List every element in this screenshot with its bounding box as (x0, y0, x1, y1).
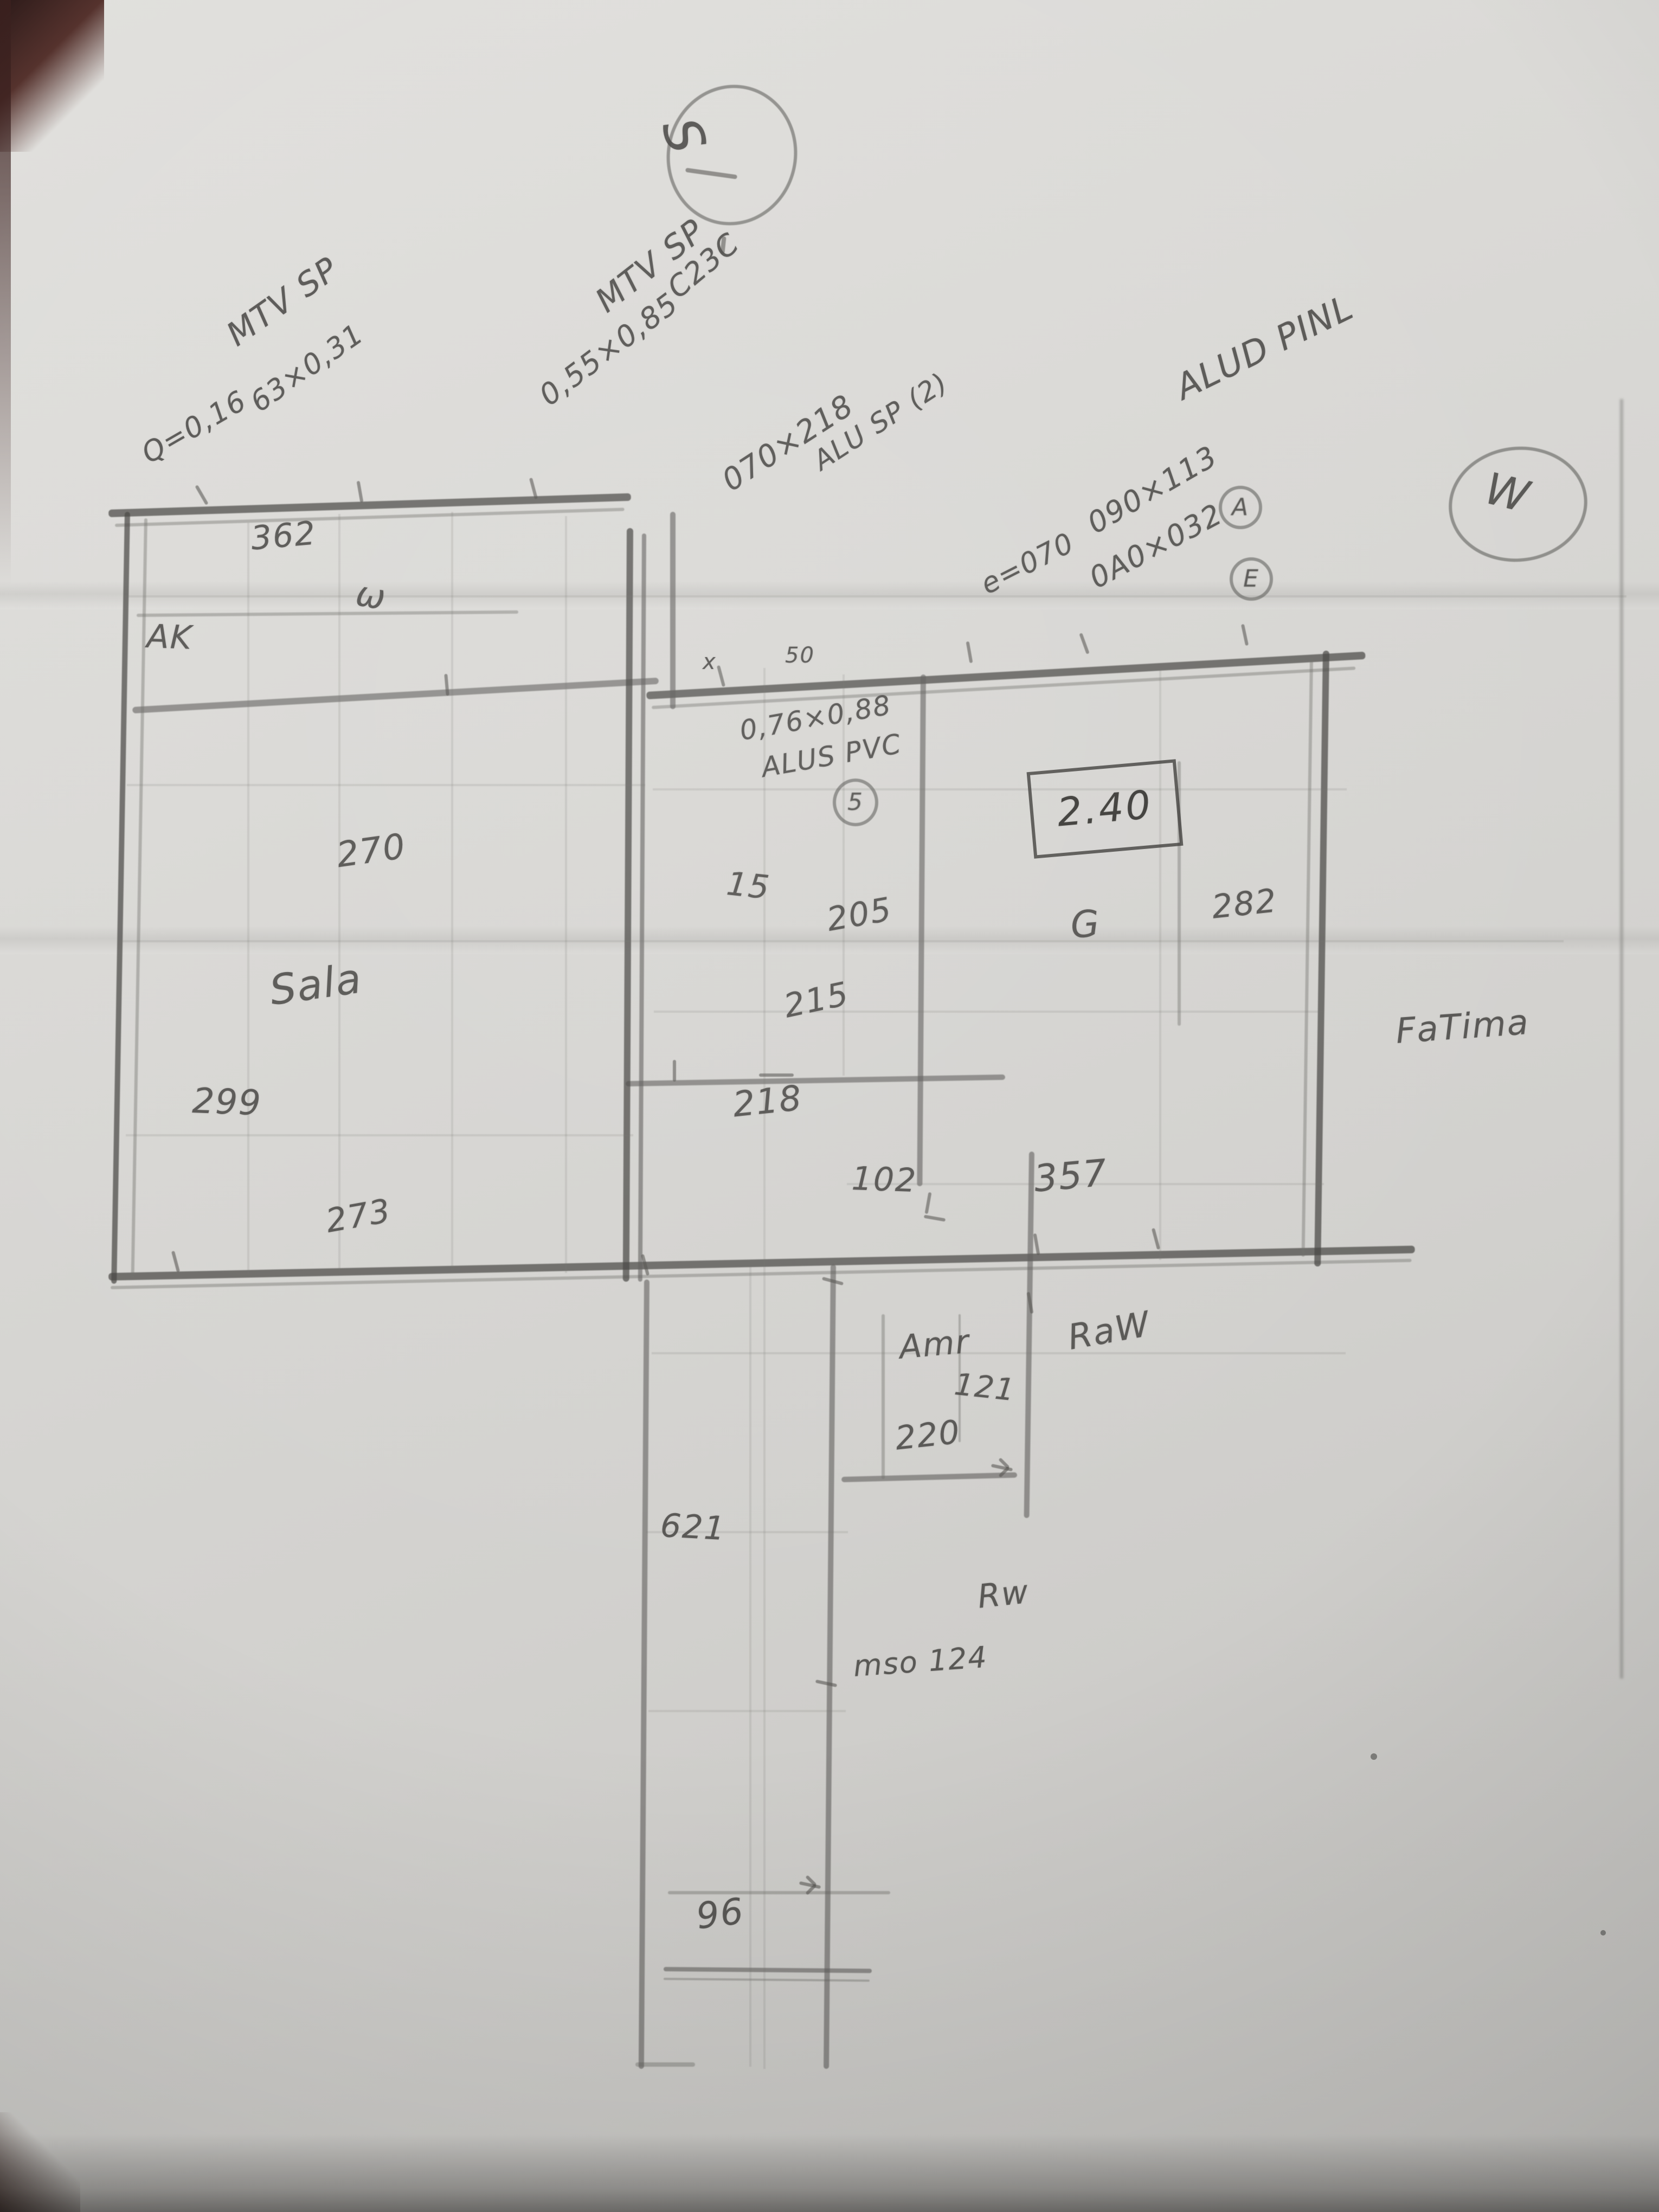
dim-270: 270 (334, 825, 408, 876)
wall-center-double (638, 533, 646, 1282)
dim-tick (925, 1192, 932, 1214)
mso124-note: mso 124 (852, 1641, 989, 1684)
wall-center (623, 528, 633, 1282)
dim-tick (171, 1251, 180, 1272)
grid-line (451, 512, 453, 1271)
pvc-spec-circle: 5 (833, 779, 878, 826)
photo-edge-shadow (0, 2134, 1659, 2212)
wall-mid-right-partition (917, 674, 926, 1186)
dim-tick (1241, 624, 1249, 646)
wall-top-left-room-top (108, 493, 631, 517)
grid-line (127, 784, 645, 786)
dim-arrow (991, 1464, 1013, 1471)
wall-left-outer (111, 512, 130, 1284)
grid-line (648, 1710, 846, 1712)
window-spec4-circle: E (1230, 557, 1273, 601)
pencil-dot (1600, 1930, 1606, 1935)
floor-plan-sketch-photo: S W (0, 0, 1659, 2212)
window-spec1-q: Q=0,16 (137, 385, 253, 471)
grid-line (749, 1266, 751, 2067)
tick-label-x: x (703, 648, 717, 674)
dim-357: 357 (1032, 1152, 1109, 1201)
wall-corridor-left (639, 1279, 650, 2069)
height-value-box: 2.40 (1027, 759, 1184, 858)
room-label-amr: Amr (898, 1323, 972, 1367)
dim-tick (673, 1060, 676, 1082)
wall-left-outer-inner (131, 518, 147, 1277)
dim-96: 96 (694, 1889, 747, 1937)
e070-note: e=070 (976, 527, 1080, 601)
grid-line (652, 1352, 1346, 1354)
wall-corridor-right (824, 1264, 836, 2069)
dim-arrow (815, 1680, 837, 1687)
dim-tick (357, 481, 364, 503)
paper-edge-shadow (1620, 399, 1623, 1679)
grid-line (565, 516, 567, 1273)
g-mark: G (1069, 902, 1102, 948)
grid-line (247, 523, 249, 1275)
dim-tick (717, 665, 725, 687)
dim-tick (1079, 633, 1089, 654)
corridor-bottom-stub (635, 2062, 695, 2067)
ak-note: AK (146, 618, 194, 658)
dim-tick (966, 641, 973, 663)
dim-215: 215 (781, 975, 852, 1026)
rw-note: Rw (976, 1573, 1031, 1617)
grid-line (1159, 668, 1161, 1260)
dim-arrow (759, 1073, 794, 1077)
dim-tick (195, 485, 208, 505)
photo-edge-shadow (0, 0, 11, 586)
pvc-spec-number: 5 (847, 789, 864, 816)
wall-band-shelf-line (137, 610, 518, 617)
grid-line (125, 595, 1626, 597)
dim-273: 273 (323, 1192, 394, 1241)
dim-tick (1033, 1233, 1040, 1255)
dim-15: 15 (725, 865, 772, 908)
dim-621: 621 (659, 1507, 726, 1548)
wall-amr-room-bottom (841, 1472, 1017, 1482)
wall-band-right-edge (670, 512, 676, 709)
grid-line (121, 940, 1564, 942)
corridor-lower-line (664, 1967, 872, 1973)
dim-299: 299 (191, 1080, 262, 1123)
grid-line (126, 1134, 633, 1136)
name-raw: RaW (1065, 1303, 1154, 1358)
wall-right-outer-inner (1302, 658, 1313, 1257)
wall-amr-left-inner (882, 1314, 885, 1479)
dim-218: 218 (731, 1077, 804, 1126)
dim-282: 282 (1210, 882, 1279, 927)
dim-102: 102 (851, 1160, 918, 1200)
alu-note: ALUD PINL (1169, 286, 1360, 408)
name-fatima: FaTima (1394, 1001, 1531, 1052)
wall-right-outer (1314, 651, 1329, 1266)
dim-220: 220 (893, 1413, 962, 1458)
photo-corner-shadow (0, 0, 104, 152)
grid-line (338, 514, 340, 1273)
wall-middle-top (646, 652, 1366, 699)
wall-middle-room-bottom (626, 1075, 1005, 1086)
room-label-sala: Sala (267, 954, 365, 1014)
dim-362: 362 (249, 515, 318, 558)
dim-121: 121 (953, 1366, 1017, 1408)
tick-label-50: 50 (785, 642, 815, 668)
corridor-dim-line (668, 1891, 890, 1894)
grid-line (653, 788, 1347, 790)
window-spec3-letter: A (1232, 494, 1249, 521)
dim-tick (924, 1215, 946, 1222)
height-value: 2.40 (1056, 782, 1155, 835)
wall-band-bottom (132, 678, 659, 713)
dim-205: 205 (824, 891, 895, 940)
grid-line (654, 1011, 1324, 1013)
wall-amr-right (1024, 1152, 1034, 1518)
pencil-dot (1371, 1753, 1377, 1760)
window-spec4-letter: E (1243, 565, 1259, 593)
corridor-lower-line-inner (664, 1978, 870, 1982)
grid-line (843, 674, 845, 1076)
